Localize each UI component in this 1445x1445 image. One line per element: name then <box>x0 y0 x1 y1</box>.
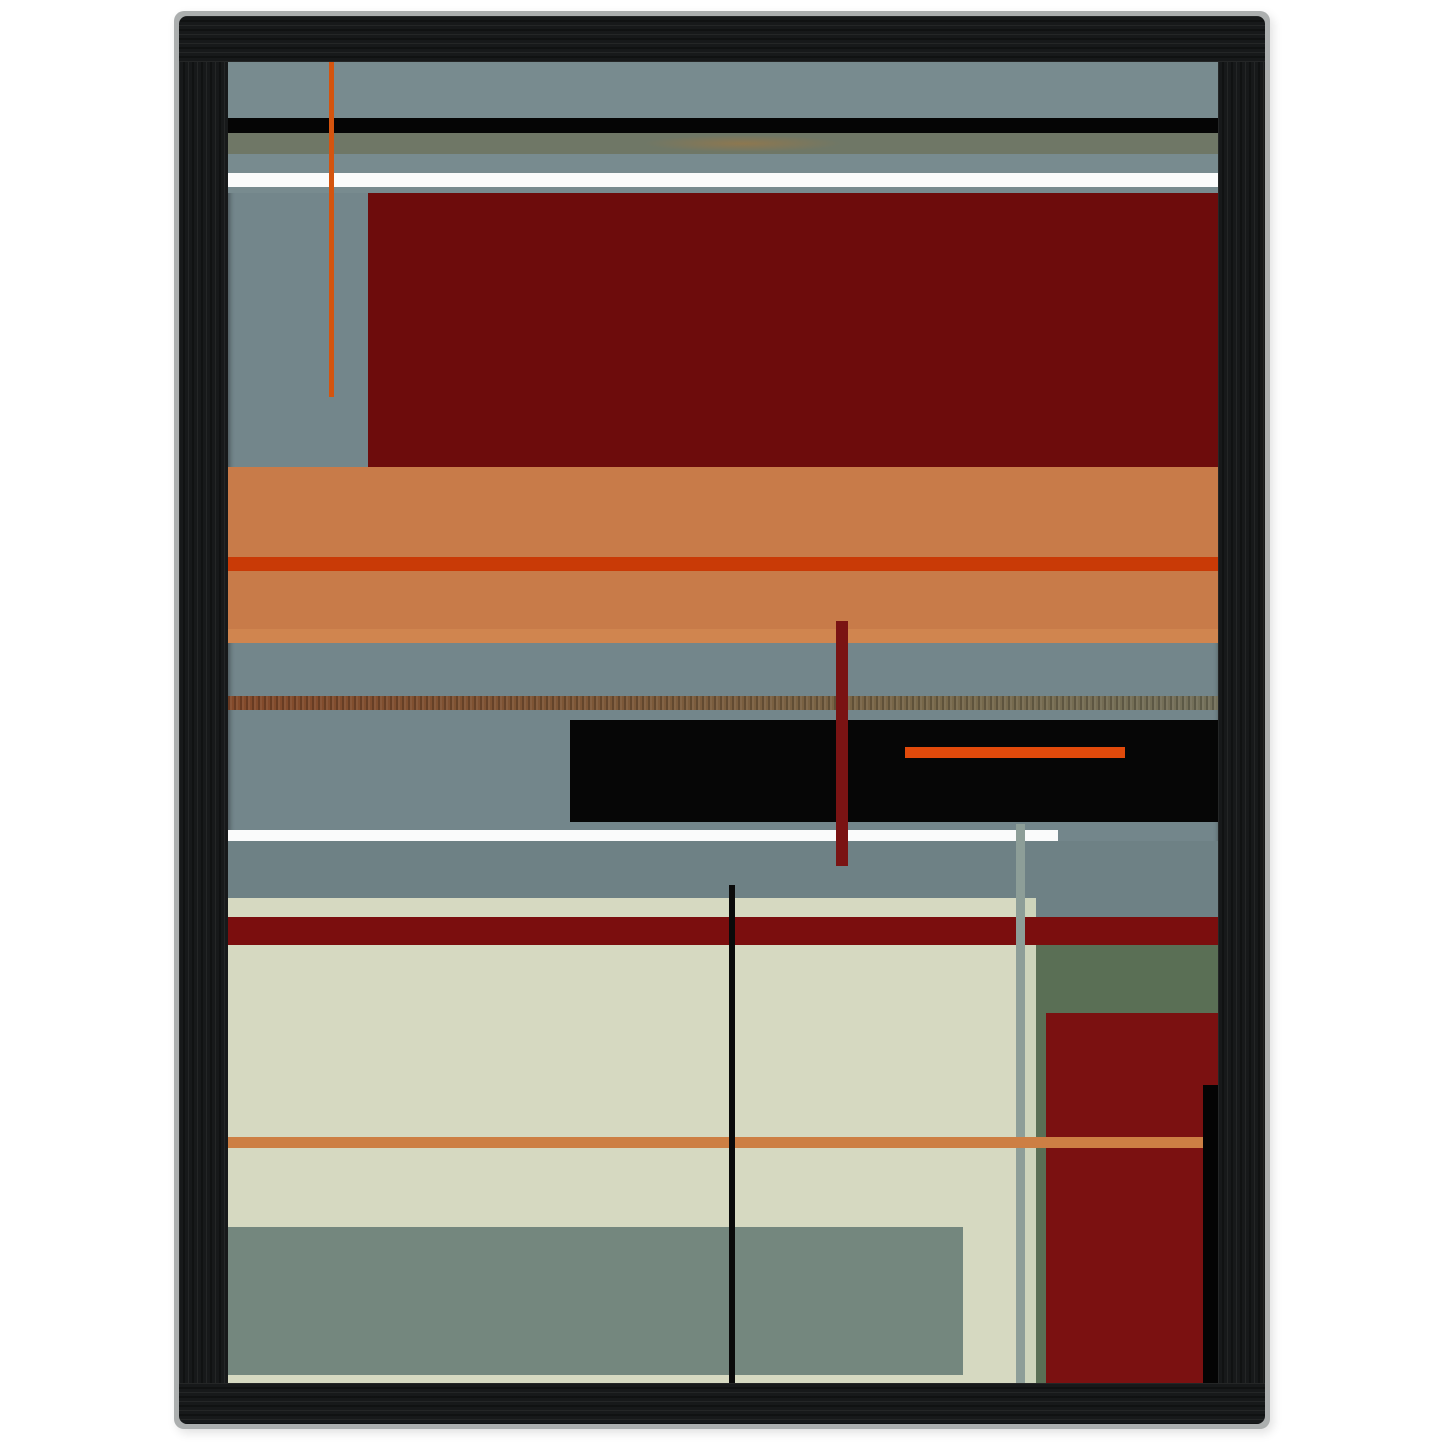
black-stripe-top <box>228 118 1218 133</box>
sage-vertical-line <box>1016 824 1025 1383</box>
frame-rail-bottom <box>179 1383 1265 1424</box>
orange-band-red-stripe <box>228 557 1218 571</box>
frame-rail-top <box>179 16 1265 62</box>
black-rect-middle <box>570 720 1218 822</box>
dark-red-rect-top <box>368 193 1218 467</box>
dark-red-block-bottom <box>1046 1013 1218 1383</box>
olive-green-strip <box>1036 1013 1046 1383</box>
orange-band <box>228 467 1218 643</box>
white-stripe-top <box>228 173 1218 187</box>
orange-band-light-strip <box>228 629 1218 643</box>
olive-stripe <box>228 133 1218 154</box>
dark-red-vertical-bar <box>836 621 848 866</box>
orange-red-bar <box>905 747 1125 758</box>
orange-line-bottom <box>228 1137 1203 1148</box>
textured-brown-stripe <box>228 696 1218 710</box>
sage-block-bottom <box>228 1227 963 1375</box>
orange-vertical-line <box>329 62 334 397</box>
black-strip-right <box>1203 1085 1218 1383</box>
product-mockup-background <box>0 0 1445 1445</box>
abstract-geometric-art-print <box>228 62 1218 1383</box>
white-stripe-middle <box>228 830 1058 841</box>
frame-stile-left <box>179 62 228 1383</box>
frame-stile-right <box>1218 62 1265 1383</box>
dark-red-band <box>228 917 1218 945</box>
black-vertical-line <box>729 885 735 1383</box>
olive-green-region <box>1036 945 1218 1013</box>
